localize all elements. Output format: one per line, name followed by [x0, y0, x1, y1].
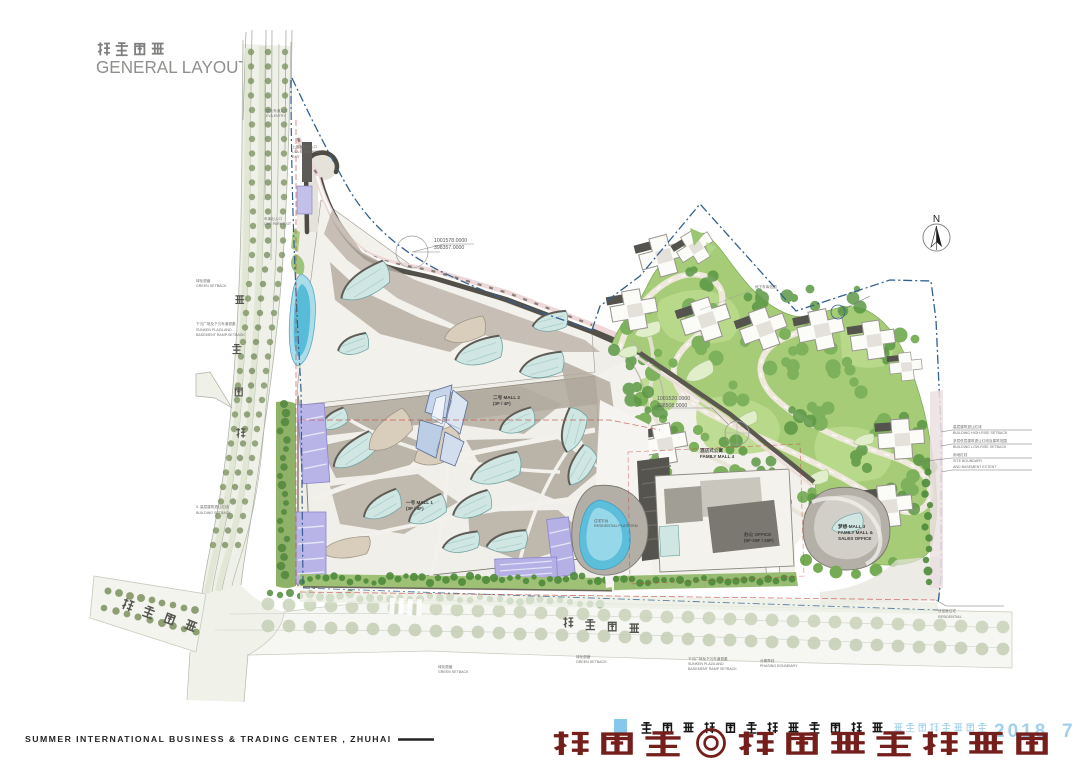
- svg-text:地下车库范围: 地下车库范围: [755, 284, 777, 289]
- svg-text:1001520.0000: 1001520.0000: [657, 396, 690, 402]
- svg-text:低密度住宅: 低密度住宅: [938, 608, 956, 613]
- svg-text:398508.0000: 398508.0000: [657, 403, 687, 409]
- svg-text:用地红线: 用地红线: [953, 452, 968, 457]
- svg-text:EXIT: EXIT: [292, 155, 301, 159]
- svg-text:SUNKEN PLAZA AND: SUNKEN PLAZA AND: [688, 662, 724, 666]
- svg-text:办公 OFFICE: 办公 OFFICE: [744, 531, 771, 538]
- svg-text:BASEMENT RAMP SETBACK: BASEMENT RAMP SETBACK: [196, 333, 245, 337]
- svg-text:一号 MALL 1: 一号 MALL 1: [406, 499, 433, 506]
- svg-text:下沉广场及下沉车道退避: 下沉广场及下沉车道退避: [688, 656, 728, 661]
- svg-text:车库出入口: 车库出入口: [264, 216, 282, 221]
- svg-text:CAR PARK EXIT: CAR PARK EXIT: [264, 222, 292, 226]
- svg-text:1001578.0000: 1001578.0000: [434, 238, 467, 244]
- svg-text:7: 7: [1062, 721, 1073, 742]
- svg-text:SUMMER INTERNATIONAL BUSINESS: SUMMER INTERNATIONAL BUSINESS & TRADING …: [25, 734, 392, 744]
- svg-text:AND BASEMENT EXTENT: AND BASEMENT EXTENT: [953, 465, 997, 469]
- svg-text:BASEMENT RAMP SETBACK: BASEMENT RAMP SETBACK: [688, 667, 737, 671]
- svg-text:BUILDING LOW-RISE SETBACK: BUILDING LOW-RISE SETBACK: [953, 445, 1007, 449]
- svg-text:(3F / 4F): (3F / 4F): [406, 506, 424, 511]
- svg-text:调头车道入口: 调头车道入口: [266, 108, 288, 113]
- svg-text:N: N: [933, 214, 940, 225]
- svg-text:二号 MALL 2: 二号 MALL 2: [493, 394, 520, 401]
- svg-text:RESIDENTIAL: RESIDENTIAL: [938, 615, 962, 619]
- svg-text:FAMILY MALL 4: FAMILY MALL 4: [700, 454, 735, 459]
- svg-text:GREEN SETBACK: GREEN SETBACK: [576, 660, 607, 664]
- svg-text:高层建筑退让红线: 高层建筑退让红线: [953, 424, 982, 429]
- svg-text:绿化退缩: 绿化退缩: [576, 654, 591, 659]
- svg-text:SUNKEN PLAZA AND: SUNKEN PLAZA AND: [196, 328, 232, 332]
- svg-text:SITE BOUNDARY: SITE BOUNDARY: [953, 459, 983, 463]
- svg-text:绿化退缩: 绿化退缩: [196, 278, 211, 283]
- svg-text:GREEN SETBACK: GREEN SETBACK: [196, 284, 227, 288]
- svg-text:RESIDENTIAL PLATFORM: RESIDENTIAL PLATFORM: [594, 524, 638, 528]
- svg-text:BUILDING HIGH-RISE SETBACK: BUILDING HIGH-RISE SETBACK: [953, 431, 1008, 435]
- svg-text:(5F-19F / 20F): (5F-19F / 20F): [744, 538, 774, 543]
- svg-text:上落客区出入口: 上落客区出入口: [292, 144, 318, 149]
- svg-text:多层低层建筑退让红线及建筑范围: 多层低层建筑退让红线及建筑范围: [953, 438, 1007, 443]
- svg-text:PHASING BOUNDARY: PHASING BOUNDARY: [760, 664, 798, 668]
- svg-text:SALES OFFICE: SALES OFFICE: [838, 536, 871, 541]
- svg-text:下沉广场及下沉车道退避: 下沉广场及下沉车道退避: [196, 321, 236, 326]
- svg-text:398357.0000: 398357.0000: [434, 245, 464, 251]
- svg-text:住宅平台: 住宅平台: [594, 518, 609, 523]
- svg-text:酒店式公寓: 酒店式公寓: [700, 447, 723, 454]
- svg-text:绿化退缩: 绿化退缩: [438, 664, 453, 669]
- svg-text:EVA ENTRY: EVA ENTRY: [266, 114, 286, 118]
- svg-text:GREEN SETBACK: GREEN SETBACK: [438, 670, 469, 674]
- svg-text:FAMILY MALL &: FAMILY MALL &: [838, 530, 874, 535]
- svg-text:5. 高层建筑退让红线: 5. 高层建筑退让红线: [196, 504, 229, 509]
- svg-text:LSA ENTRANCE/: LSA ENTRANCE/: [292, 150, 320, 154]
- svg-text:BUILDING SETBACK: BUILDING SETBACK: [196, 511, 231, 515]
- svg-text:(3F / 4F): (3F / 4F): [493, 401, 511, 406]
- svg-text:GENERAL LAYOUT: GENERAL LAYOUT: [96, 58, 249, 77]
- svg-text:分期界线: 分期界线: [760, 658, 775, 663]
- svg-text:梦想-MALL 3: 梦想-MALL 3: [838, 523, 866, 530]
